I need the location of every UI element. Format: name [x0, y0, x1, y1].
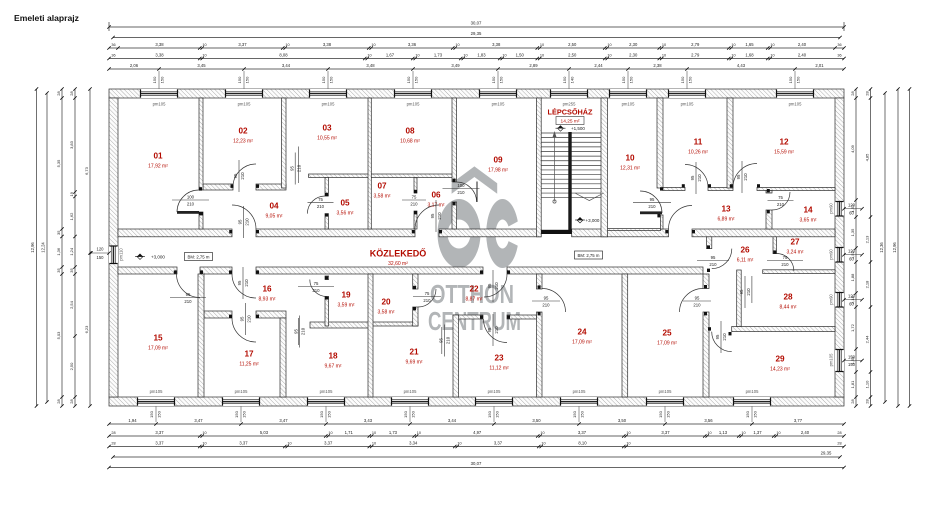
svg-text:95: 95	[237, 280, 242, 285]
svg-text:28: 28	[850, 399, 855, 404]
svg-text:10: 10	[202, 431, 206, 435]
svg-text:95: 95	[186, 292, 191, 297]
svg-text:5,35: 5,35	[56, 159, 61, 168]
svg-text:3,58 m²: 3,58 m²	[374, 193, 391, 199]
svg-text:95: 95	[289, 166, 294, 171]
svg-text:1,68: 1,68	[745, 52, 754, 57]
svg-text:36: 36	[111, 43, 115, 47]
svg-text:75: 75	[778, 195, 783, 200]
svg-text:01: 01	[153, 152, 163, 161]
svg-text:36: 36	[111, 53, 115, 57]
svg-text:2,30: 2,30	[629, 52, 638, 57]
svg-text:29: 29	[775, 355, 785, 364]
svg-text:LÉPCSŐHÁZ: LÉPCSŐHÁZ	[548, 108, 594, 117]
svg-text:2,44: 2,44	[594, 63, 603, 68]
svg-text:150: 150	[403, 410, 408, 417]
svg-text:1,35: 1,35	[850, 228, 855, 237]
svg-text:12,96: 12,96	[30, 242, 35, 253]
svg-text:17: 17	[244, 350, 254, 359]
svg-text:210: 210	[494, 326, 499, 334]
svg-text:150: 150	[414, 76, 419, 83]
svg-text:10: 10	[372, 431, 376, 435]
svg-text:pm105: pm105	[320, 389, 333, 394]
svg-text:2,18: 2,18	[864, 280, 869, 289]
svg-text:03: 03	[322, 124, 332, 133]
svg-text:150: 150	[572, 410, 577, 417]
svg-text:150: 150	[562, 76, 567, 83]
svg-text:3,38: 3,38	[323, 42, 332, 47]
svg-text:pm105: pm105	[659, 389, 672, 394]
svg-text:95: 95	[544, 296, 549, 301]
svg-text:+3,000: +3,000	[151, 255, 165, 260]
svg-text:95: 95	[695, 296, 700, 301]
svg-text:27: 27	[790, 238, 800, 247]
svg-text:20: 20	[381, 298, 391, 307]
svg-text:1,10: 1,10	[864, 380, 869, 389]
svg-text:210: 210	[423, 298, 431, 303]
svg-text:95: 95	[240, 316, 245, 321]
svg-text:150: 150	[157, 410, 162, 417]
svg-text:14,25 m²: 14,25 m²	[561, 119, 580, 125]
svg-text:02: 02	[238, 127, 248, 136]
svg-text:15: 15	[153, 334, 163, 343]
svg-text:28: 28	[864, 399, 869, 404]
svg-text:+1,500: +1,500	[571, 126, 585, 131]
svg-text:75: 75	[783, 255, 788, 260]
svg-text:210: 210	[777, 202, 785, 207]
svg-text:150: 150	[149, 410, 154, 417]
svg-text:3,48: 3,48	[366, 63, 375, 68]
svg-text:2,30: 2,30	[629, 42, 638, 47]
svg-text:150: 150	[491, 76, 496, 83]
svg-text:150: 150	[411, 410, 416, 417]
svg-text:210: 210	[494, 282, 499, 290]
svg-text:+3,000: +3,000	[586, 218, 600, 223]
svg-text:210: 210	[709, 262, 717, 267]
svg-text:2,89: 2,89	[529, 63, 538, 68]
svg-text:2,50: 2,50	[568, 52, 577, 57]
svg-text:2,40: 2,40	[798, 52, 807, 57]
svg-text:16: 16	[262, 285, 272, 294]
svg-text:pm105: pm105	[789, 102, 802, 107]
svg-text:2,79: 2,79	[691, 42, 700, 47]
svg-text:pm105: pm105	[235, 389, 248, 394]
svg-text:10: 10	[457, 441, 461, 445]
svg-text:100: 100	[457, 183, 465, 188]
svg-text:3,34: 3,34	[409, 440, 418, 445]
svg-text:100: 100	[187, 195, 195, 200]
svg-text:1,73: 1,73	[434, 52, 443, 57]
svg-text:17,09 m²: 17,09 m²	[572, 339, 592, 345]
svg-text:210: 210	[244, 279, 249, 287]
svg-text:210: 210	[446, 336, 451, 344]
svg-text:10: 10	[540, 43, 544, 47]
svg-text:6,73: 6,73	[84, 166, 89, 175]
svg-text:35: 35	[69, 268, 74, 273]
svg-text:3,65 m²: 3,65 m²	[800, 217, 817, 223]
svg-text:95: 95	[739, 289, 744, 294]
svg-text:150: 150	[152, 76, 157, 83]
svg-text:3,38: 3,38	[492, 42, 501, 47]
svg-text:210: 210	[542, 303, 550, 308]
svg-text:95: 95	[487, 283, 492, 288]
svg-text:3,37: 3,37	[155, 440, 164, 445]
svg-text:9,67 m²: 9,67 m²	[325, 363, 342, 369]
svg-text:pm105: pm105	[404, 389, 417, 394]
svg-text:10: 10	[625, 154, 635, 163]
svg-text:3,47: 3,47	[279, 418, 288, 423]
svg-text:8,87 m²: 8,87 m²	[466, 296, 483, 302]
svg-text:6,23: 6,23	[84, 325, 89, 334]
svg-text:210: 210	[693, 303, 701, 308]
svg-text:150: 150	[753, 410, 758, 417]
svg-text:29,35: 29,35	[821, 451, 832, 456]
svg-text:210: 210	[317, 204, 325, 209]
svg-text:11: 11	[694, 138, 703, 147]
svg-text:28: 28	[783, 293, 793, 302]
svg-text:10: 10	[607, 43, 611, 47]
svg-text:18: 18	[328, 352, 338, 361]
svg-text:8,08: 8,08	[279, 52, 288, 57]
svg-text:10: 10	[417, 431, 421, 435]
svg-text:210: 210	[781, 262, 789, 267]
svg-text:210: 210	[301, 327, 306, 335]
svg-text:3,47: 3,47	[194, 418, 203, 423]
svg-text:10: 10	[371, 43, 375, 47]
svg-text:140: 140	[570, 76, 575, 83]
svg-text:pm105: pm105	[573, 389, 586, 394]
svg-text:21: 21	[409, 348, 419, 357]
svg-text:06: 06	[431, 191, 441, 200]
svg-text:10: 10	[707, 431, 711, 435]
svg-text:95: 95	[238, 219, 243, 224]
svg-text:210: 210	[245, 218, 250, 226]
svg-text:10: 10	[731, 53, 735, 57]
svg-text:28: 28	[69, 91, 74, 96]
svg-text:2,38: 2,38	[653, 63, 662, 68]
svg-text:150: 150	[580, 410, 585, 417]
svg-text:150: 150	[666, 410, 671, 417]
svg-text:6,89 m²: 6,89 m²	[718, 216, 735, 222]
svg-text:3,38: 3,38	[155, 52, 164, 57]
svg-text:1,24: 1,24	[69, 247, 74, 256]
svg-text:150: 150	[237, 76, 242, 83]
svg-text:pm90: pm90	[829, 294, 834, 305]
svg-text:150: 150	[245, 76, 250, 83]
svg-text:150: 150	[97, 255, 105, 260]
svg-text:17,09 m²: 17,09 m²	[657, 340, 677, 346]
svg-text:75: 75	[425, 291, 430, 296]
svg-text:3,59 m²: 3,59 m²	[338, 302, 355, 308]
svg-text:1,37: 1,37	[753, 430, 762, 435]
svg-text:25: 25	[662, 329, 672, 338]
svg-text:10: 10	[540, 53, 544, 57]
svg-text:2,50: 2,50	[69, 362, 74, 371]
svg-text:10: 10	[541, 441, 545, 445]
svg-text:10,68 m²: 10,68 m²	[400, 138, 420, 144]
svg-text:28: 28	[56, 399, 61, 404]
svg-text:150: 150	[160, 76, 165, 83]
svg-text:pm110: pm110	[119, 248, 124, 261]
svg-text:36: 36	[837, 43, 841, 47]
svg-text:95: 95	[690, 175, 695, 180]
svg-text:210: 210	[697, 174, 702, 182]
svg-text:10: 10	[502, 53, 506, 57]
svg-text:150: 150	[329, 76, 334, 83]
svg-text:8,93 m²: 8,93 m²	[259, 296, 276, 302]
svg-text:10: 10	[463, 53, 467, 57]
svg-text:1,50: 1,50	[516, 52, 525, 57]
svg-text:3,37: 3,37	[324, 440, 333, 445]
svg-text:1,65: 1,65	[745, 42, 754, 47]
svg-text:pm105: pm105	[622, 102, 635, 107]
svg-text:14: 14	[803, 206, 813, 215]
svg-text:07: 07	[377, 182, 387, 191]
svg-text:1,94: 1,94	[128, 418, 137, 423]
svg-text:150: 150	[745, 410, 750, 417]
svg-text:1,62: 1,62	[69, 212, 74, 221]
svg-text:95: 95	[233, 173, 238, 178]
svg-text:9,69 m²: 9,69 m²	[406, 359, 423, 365]
svg-text:95: 95	[711, 255, 716, 260]
svg-text:75: 75	[318, 197, 323, 202]
svg-text:28: 28	[111, 441, 115, 445]
svg-text:4,43: 4,43	[737, 63, 746, 68]
svg-text:3,36: 3,36	[408, 42, 417, 47]
svg-text:150: 150	[621, 76, 626, 83]
svg-text:150: 150	[688, 76, 693, 83]
svg-text:2,01: 2,01	[815, 63, 824, 68]
svg-text:10: 10	[202, 441, 206, 445]
svg-text:29,35: 29,35	[471, 31, 482, 36]
svg-text:3,45: 3,45	[197, 63, 206, 68]
svg-text:210: 210	[184, 299, 192, 304]
svg-text:17,98 m²: 17,98 m²	[488, 167, 508, 173]
svg-text:75: 75	[412, 195, 417, 200]
svg-text:10: 10	[202, 43, 206, 47]
svg-text:10: 10	[770, 43, 774, 47]
svg-text:210: 210	[240, 172, 245, 180]
svg-text:26: 26	[740, 246, 750, 255]
svg-text:210: 210	[437, 212, 442, 220]
svg-text:150: 150	[327, 410, 332, 417]
svg-text:BM: 2,75 m: BM: 2,75 m	[578, 253, 600, 258]
svg-text:3,44: 3,44	[448, 418, 457, 423]
svg-text:75: 75	[314, 281, 319, 286]
svg-text:1,13: 1,13	[719, 430, 728, 435]
svg-text:210: 210	[722, 333, 727, 341]
svg-text:pm105: pm105	[150, 389, 163, 394]
svg-text:10: 10	[626, 431, 630, 435]
svg-text:150: 150	[319, 410, 324, 417]
svg-text:BM: 2,75 m: BM: 2,75 m	[188, 254, 210, 259]
svg-text:1,72: 1,72	[850, 323, 855, 332]
svg-text:1,50: 1,50	[850, 356, 855, 365]
svg-text:12,96: 12,96	[892, 242, 897, 253]
svg-text:pm105: pm105	[829, 353, 834, 366]
svg-text:1,88: 1,88	[850, 273, 855, 282]
svg-text:1,67: 1,67	[386, 52, 395, 57]
svg-text:1,83: 1,83	[477, 52, 486, 57]
svg-text:1,52: 1,52	[850, 204, 855, 213]
svg-text:pm105: pm105	[153, 102, 166, 107]
svg-text:1,71: 1,71	[345, 430, 354, 435]
svg-text:210: 210	[746, 288, 751, 296]
svg-text:2,13: 2,13	[864, 235, 869, 244]
svg-text:10: 10	[455, 43, 459, 47]
svg-text:8,44 m²: 8,44 m²	[780, 304, 797, 310]
svg-text:10: 10	[776, 431, 780, 435]
svg-text:10: 10	[770, 53, 774, 57]
svg-text:210: 210	[247, 315, 252, 323]
svg-text:10: 10	[372, 441, 376, 445]
svg-text:15,59 m²: 15,59 m²	[774, 149, 794, 155]
svg-text:10: 10	[731, 43, 735, 47]
svg-text:2,44: 2,44	[864, 335, 869, 344]
svg-text:10: 10	[285, 43, 289, 47]
svg-text:10: 10	[328, 431, 332, 435]
svg-text:30,07: 30,07	[471, 461, 482, 466]
svg-text:3,37: 3,37	[494, 440, 503, 445]
svg-text:120: 120	[97, 247, 105, 252]
svg-text:95: 95	[430, 213, 435, 218]
svg-text:1,52: 1,52	[850, 250, 855, 259]
svg-text:pm105: pm105	[746, 389, 759, 394]
svg-text:12,24: 12,24	[41, 242, 46, 253]
svg-text:5,03: 5,03	[260, 430, 269, 435]
svg-text:19: 19	[69, 191, 74, 196]
svg-text:150: 150	[680, 76, 685, 83]
svg-text:10: 10	[415, 53, 419, 57]
svg-text:3,83: 3,83	[69, 140, 74, 149]
svg-text:10,55 m²: 10,55 m²	[317, 135, 337, 141]
svg-text:1,73: 1,73	[389, 430, 398, 435]
svg-text:150: 150	[499, 76, 504, 83]
svg-text:28: 28	[56, 91, 61, 96]
svg-text:10: 10	[626, 441, 630, 445]
svg-text:13: 13	[721, 205, 731, 214]
svg-text:3,37: 3,37	[578, 430, 587, 435]
svg-text:4,09: 4,09	[850, 144, 855, 153]
svg-text:95: 95	[715, 334, 720, 339]
svg-text:pm105: pm105	[681, 102, 694, 107]
svg-text:210: 210	[457, 190, 465, 195]
svg-text:10: 10	[741, 431, 745, 435]
svg-text:12,23 m²: 12,23 m²	[233, 138, 253, 144]
svg-text:28: 28	[111, 431, 115, 435]
svg-text:14,23 m²: 14,23 m²	[770, 366, 790, 372]
svg-text:5,03: 5,03	[56, 331, 61, 340]
svg-text:150: 150	[788, 76, 793, 83]
svg-text:210: 210	[410, 202, 418, 207]
svg-text:pm255: pm255	[563, 102, 576, 107]
svg-text:150: 150	[658, 410, 663, 417]
svg-text:210: 210	[312, 288, 320, 293]
svg-text:210: 210	[187, 202, 195, 207]
svg-text:3,37: 3,37	[155, 430, 164, 435]
svg-text:150: 150	[406, 76, 411, 83]
svg-text:3,50: 3,50	[618, 418, 627, 423]
svg-text:28: 28	[837, 431, 841, 435]
svg-text:3,37: 3,37	[238, 42, 247, 47]
svg-text:3,37: 3,37	[239, 440, 248, 445]
svg-text:pm90: pm90	[829, 203, 834, 214]
svg-text:36: 36	[837, 53, 841, 57]
svg-text:24: 24	[577, 328, 587, 337]
svg-text:150: 150	[796, 76, 801, 83]
svg-text:1,81: 1,81	[850, 380, 855, 389]
svg-text:05: 05	[340, 199, 350, 208]
svg-text:210: 210	[648, 204, 656, 209]
svg-text:150: 150	[629, 76, 634, 83]
svg-text:pm105: pm105	[407, 102, 420, 107]
svg-text:150: 150	[487, 410, 492, 417]
svg-text:10: 10	[662, 53, 666, 57]
svg-text:12,36: 12,36	[879, 242, 884, 253]
svg-text:150: 150	[321, 76, 326, 83]
svg-text:2,18: 2,18	[850, 295, 855, 304]
svg-text:30,07: 30,07	[471, 21, 482, 26]
svg-text:8,10: 8,10	[578, 440, 587, 445]
svg-text:3,56 m²: 3,56 m²	[337, 210, 354, 216]
svg-text:3,24 m²: 3,24 m²	[787, 249, 804, 255]
svg-text:32,60 m²: 32,60 m²	[388, 261, 408, 267]
svg-text:95: 95	[650, 197, 655, 202]
svg-text:pm105: pm105	[322, 102, 335, 107]
svg-text:210: 210	[296, 164, 301, 172]
svg-text:pm105: pm105	[492, 102, 505, 107]
svg-text:10: 10	[540, 431, 544, 435]
svg-text:11,12 m²: 11,12 m²	[489, 365, 509, 371]
svg-text:35: 35	[56, 268, 61, 273]
svg-text:35: 35	[56, 230, 61, 235]
svg-text:19: 19	[341, 291, 351, 300]
svg-text:3,49: 3,49	[451, 63, 460, 68]
svg-text:pm90: pm90	[829, 249, 834, 260]
svg-text:04: 04	[269, 202, 279, 211]
svg-text:6,11 m²: 6,11 m²	[737, 257, 754, 263]
svg-text:10: 10	[607, 53, 611, 57]
svg-text:4,85: 4,85	[864, 153, 869, 162]
svg-text:2,50: 2,50	[568, 42, 577, 47]
svg-text:KÖZLEKEDŐ: KÖZLEKEDŐ	[370, 248, 427, 259]
svg-text:28: 28	[850, 91, 855, 96]
svg-text:3,56: 3,56	[704, 418, 713, 423]
svg-text:28: 28	[69, 399, 74, 404]
svg-text:28: 28	[837, 441, 841, 445]
svg-text:3,58 m²: 3,58 m²	[378, 309, 395, 315]
svg-text:10: 10	[287, 441, 291, 445]
svg-text:1,36: 1,36	[56, 247, 61, 256]
svg-text:pm105: pm105	[238, 102, 251, 107]
svg-text:09: 09	[493, 156, 503, 165]
svg-text:3,44: 3,44	[282, 63, 291, 68]
svg-text:12: 12	[779, 138, 789, 147]
svg-text:150: 150	[242, 410, 247, 417]
svg-text:210: 210	[743, 173, 748, 181]
svg-text:150: 150	[495, 410, 500, 417]
svg-text:08: 08	[405, 127, 415, 136]
svg-text:150: 150	[234, 410, 239, 417]
svg-text:10: 10	[662, 43, 666, 47]
svg-text:95: 95	[294, 329, 299, 334]
svg-text:2,06: 2,06	[130, 63, 139, 68]
svg-text:Emeleti alaprajz: Emeleti alaprajz	[14, 13, 79, 23]
svg-text:10: 10	[202, 53, 206, 57]
svg-text:11,25 m²: 11,25 m²	[239, 361, 259, 367]
svg-text:95: 95	[439, 338, 444, 343]
svg-text:17,92 m²: 17,92 m²	[148, 163, 168, 169]
